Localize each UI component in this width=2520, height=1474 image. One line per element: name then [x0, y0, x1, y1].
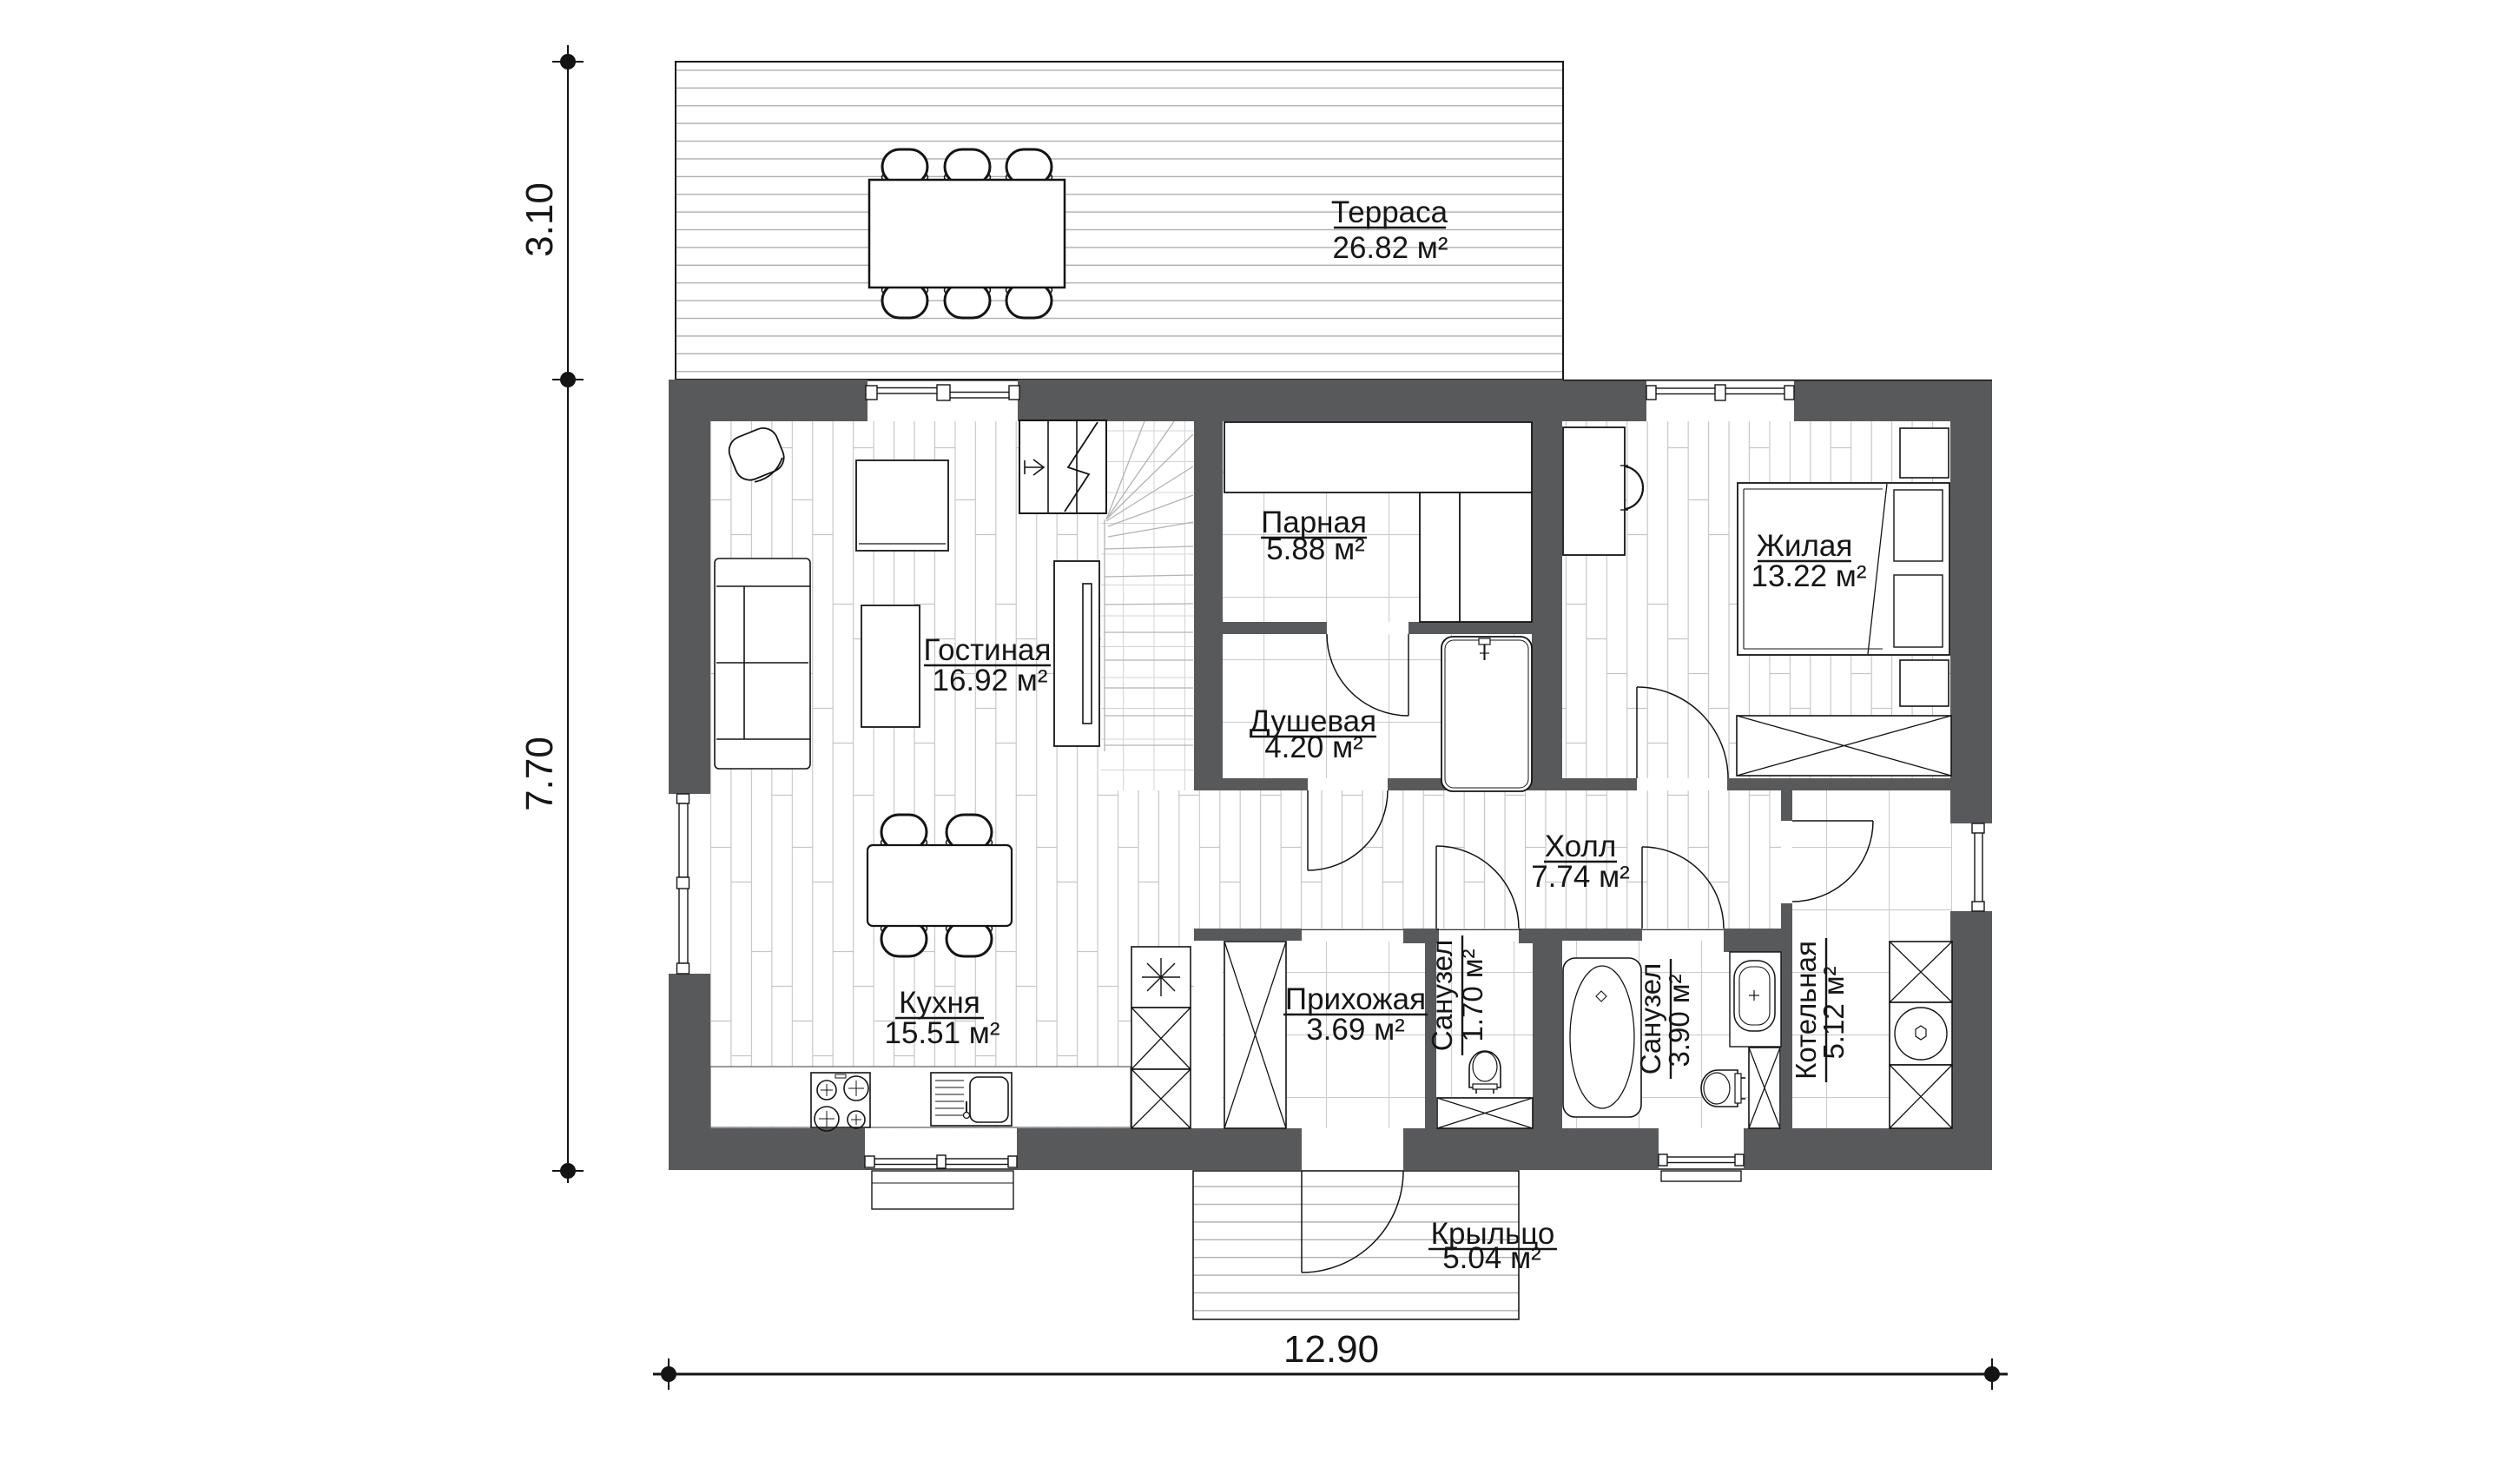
svg-text:Терраса: Терраса [1331, 195, 1448, 229]
svg-text:Кухня: Кухня [899, 986, 980, 1020]
svg-text:1.70 м²: 1.70 м² [1456, 949, 1488, 1041]
svg-text:26.82 м²: 26.82 м² [1332, 231, 1448, 265]
svg-text:15.51 м²: 15.51 м² [884, 1016, 999, 1050]
svg-text:Холл: Холл [1545, 830, 1617, 863]
svg-text:Санузел: Санузел [1634, 963, 1666, 1075]
svg-text:7.74 м²: 7.74 м² [1531, 860, 1630, 894]
svg-text:Санузел: Санузел [1426, 940, 1458, 1052]
svg-text:13.22 м²: 13.22 м² [1751, 559, 1866, 593]
svg-text:16.92 м²: 16.92 м² [932, 664, 1047, 697]
svg-text:7.70: 7.70 [518, 737, 561, 811]
svg-text:Прихожая: Прихожая [1285, 982, 1426, 1016]
svg-text:12.90: 12.90 [1283, 1328, 1379, 1371]
svg-text:5.04 м²: 5.04 м² [1442, 1241, 1541, 1275]
svg-text:3.10: 3.10 [518, 182, 561, 257]
svg-text:Гостиная: Гостиная [924, 633, 1052, 667]
svg-text:Жилая: Жилая [1757, 529, 1853, 563]
svg-text:3.69 м²: 3.69 м² [1306, 1013, 1405, 1047]
svg-text:5.88 м²: 5.88 м² [1266, 532, 1365, 566]
svg-text:5.12 м²: 5.12 м² [1817, 966, 1850, 1059]
svg-text:3.90 м²: 3.90 м² [1663, 974, 1695, 1067]
svg-text:4.20 м²: 4.20 м² [1264, 730, 1363, 764]
